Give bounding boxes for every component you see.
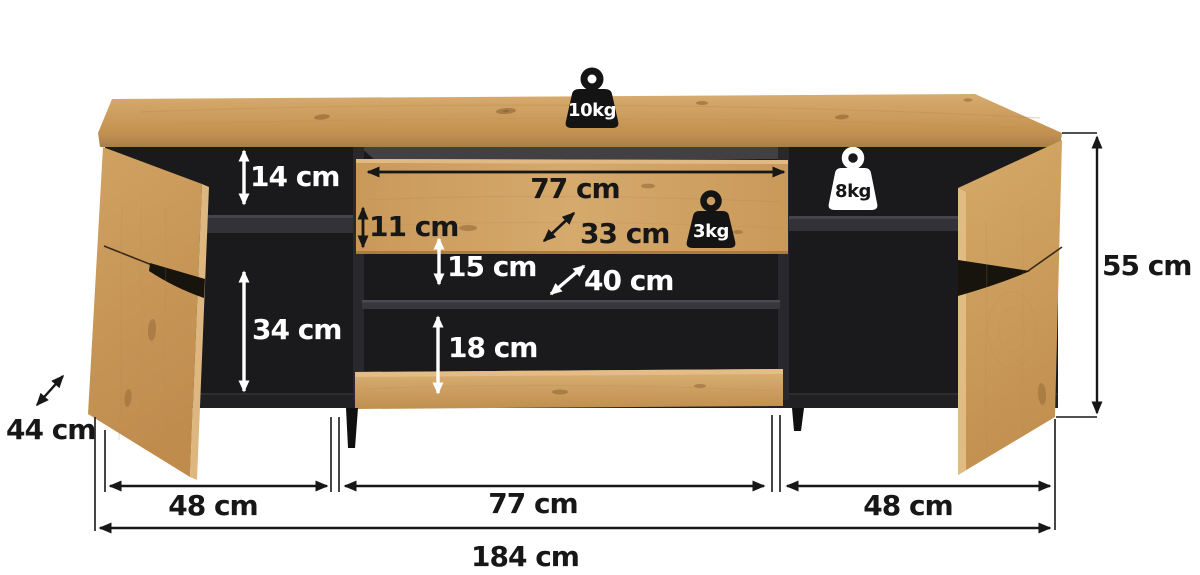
top-front-edge: [98, 133, 1062, 147]
dim-total-width-label: 184 cm: [471, 540, 579, 573]
dim-drawer-width-label: 77 cm: [530, 172, 620, 205]
left-door-panel: [88, 147, 209, 480]
weight-3kg-label: 3kg: [693, 221, 729, 242]
right-door-panel: [958, 140, 1062, 475]
weight-8kg-label: 8kg: [835, 181, 871, 202]
weight-ring-10kg: [584, 71, 600, 87]
center-shelf-edge: [362, 300, 780, 303]
dim-depth-arrow: [37, 376, 63, 405]
dim-depth-label: 44 cm: [6, 413, 96, 446]
cabinet-leg-left: [346, 408, 358, 448]
dim-left-section-label: 48 cm: [168, 489, 258, 522]
diagram-canvas: 8kg: [0, 0, 1200, 575]
dim-right-section-label: 48 cm: [863, 489, 953, 522]
dim-drawer-height-label: 11 cm: [369, 210, 459, 243]
dim-bottom-compartment-label: 18 cm: [448, 331, 538, 364]
drawer-cavity-rail: [360, 147, 788, 160]
drawer-bottom-shadow: [356, 251, 788, 254]
bottom-flap-panel: [355, 369, 783, 409]
right-door-edge: [958, 188, 966, 475]
dim-left-compartment-label: 34 cm: [252, 313, 342, 346]
dim-height-label: 55 cm: [1102, 249, 1192, 282]
dim-center-section-label: 77 cm: [488, 487, 578, 520]
furniture-diagram: 8kg: [0, 0, 1200, 575]
dim-center-gap-label: 15 cm: [447, 250, 537, 283]
dim-inner-depth-upper-label: 33 cm: [580, 217, 670, 250]
cabinet-leg-right: [792, 408, 804, 431]
dim-top-gap-label: 14 cm: [250, 160, 340, 193]
weight-10kg-label: 10kg: [568, 100, 616, 121]
weight-badge-10kg: 10kg: [566, 71, 619, 128]
dim-inner-depth-lower-label: 40 cm: [584, 264, 674, 297]
